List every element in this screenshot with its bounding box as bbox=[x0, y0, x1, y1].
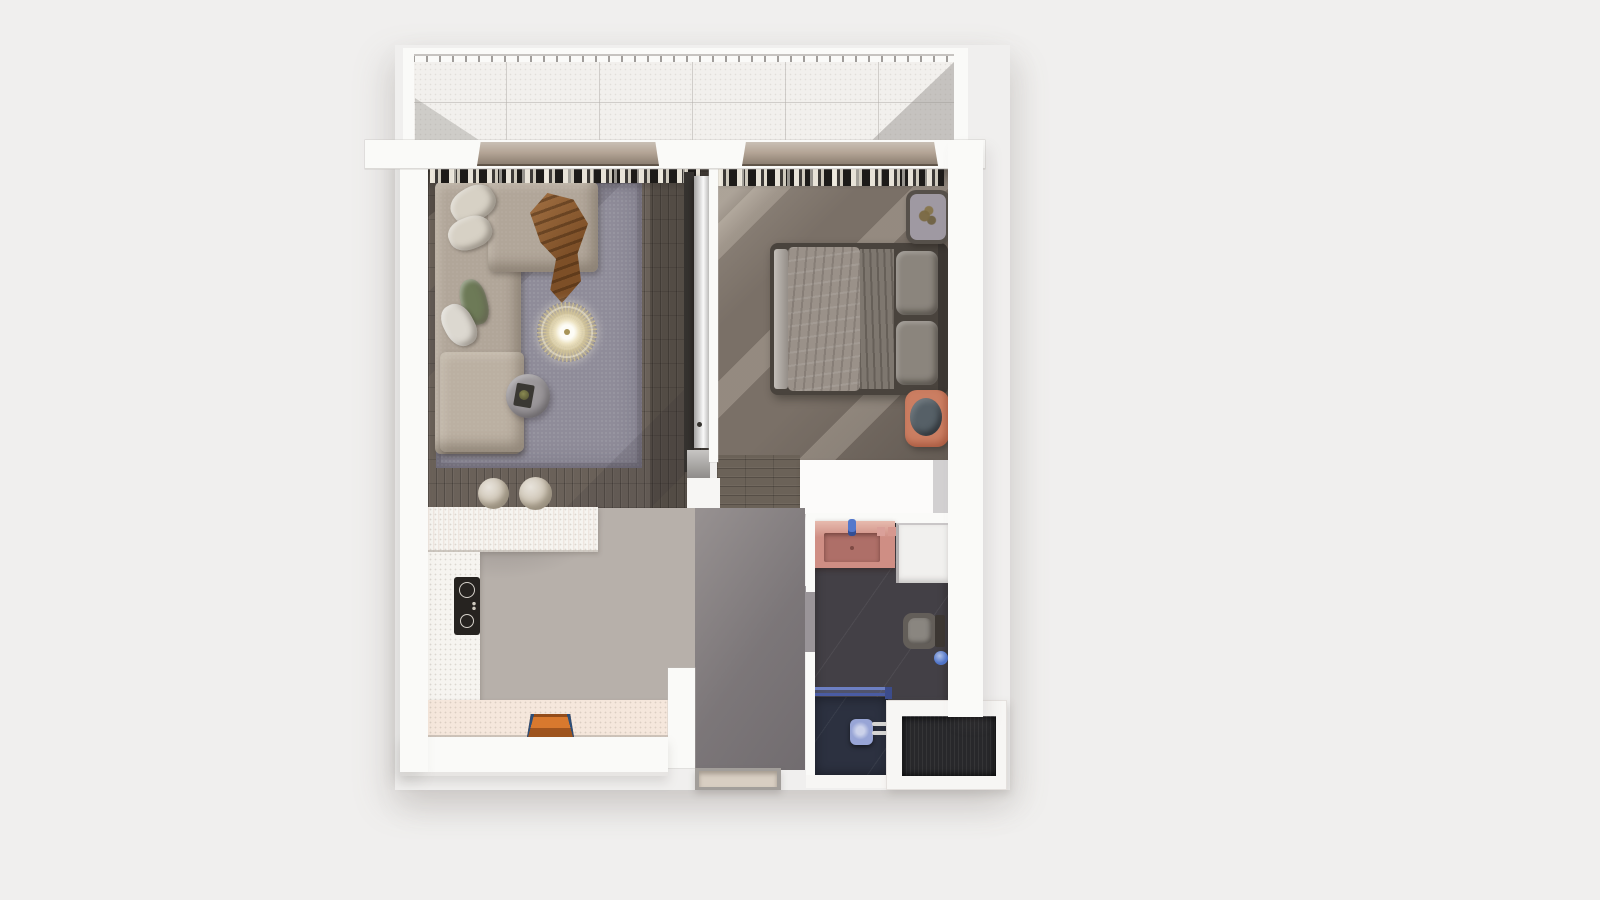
bed-headboard bbox=[938, 243, 948, 395]
cooktop bbox=[454, 577, 480, 635]
bar-stool-1 bbox=[478, 478, 509, 509]
coffee-table bbox=[506, 374, 550, 418]
bed-pillow-1 bbox=[896, 251, 938, 315]
bar-stool-2 bbox=[519, 477, 552, 510]
balcony bbox=[403, 48, 968, 144]
pendant-chandelier bbox=[537, 302, 597, 362]
hallway-floor bbox=[695, 508, 805, 770]
nightstand bbox=[906, 190, 950, 244]
soap-items bbox=[877, 527, 897, 536]
decor-tray bbox=[513, 383, 535, 409]
balcony-side-wall-right bbox=[954, 48, 968, 144]
threshold-step bbox=[699, 771, 777, 787]
bed-duvet bbox=[788, 247, 860, 391]
wall-bottom bbox=[400, 737, 668, 776]
chandelier-bulb bbox=[564, 329, 570, 335]
wall-divider bbox=[709, 142, 718, 462]
vanity-faucet bbox=[848, 519, 856, 536]
washing-machine bbox=[896, 523, 951, 583]
balcony-side-wall-left bbox=[403, 48, 414, 144]
bedroom bbox=[717, 168, 948, 460]
wardrobe bbox=[800, 460, 933, 515]
sliding-door-lintel-living bbox=[477, 142, 659, 166]
balcony-tiles bbox=[413, 62, 959, 144]
wall-left bbox=[400, 150, 428, 772]
cooktop-knobs bbox=[471, 602, 477, 610]
bed-sheet bbox=[860, 249, 894, 389]
entry-pillar-wall bbox=[668, 668, 695, 768]
glass-end-post bbox=[885, 687, 892, 699]
toilet-tank bbox=[935, 615, 945, 647]
entry-threshold bbox=[695, 768, 781, 790]
wardrobe-side-panel bbox=[933, 460, 949, 515]
door-recess bbox=[684, 172, 694, 472]
vanity-basin bbox=[824, 533, 880, 562]
curtain-bedroom bbox=[718, 168, 944, 186]
toilet bbox=[903, 613, 945, 649]
flush-button bbox=[934, 651, 948, 665]
living-room bbox=[428, 165, 709, 508]
toilet-lid bbox=[908, 618, 932, 644]
balcony-railing bbox=[413, 54, 961, 62]
double-bed bbox=[770, 243, 948, 395]
shower-head bbox=[850, 719, 873, 745]
bathroom-left-wall-upper bbox=[806, 515, 815, 592]
ottoman-pouf bbox=[905, 390, 949, 447]
floor-plan-render bbox=[0, 0, 1600, 900]
shower-glass bbox=[814, 687, 892, 699]
pouf-cushion bbox=[910, 398, 942, 436]
sliding-door-lintel-bedroom bbox=[742, 142, 938, 166]
burner-back bbox=[460, 614, 474, 628]
burner-front bbox=[459, 582, 475, 598]
basin-drain bbox=[850, 546, 854, 550]
bed-pillow-2 bbox=[896, 321, 938, 385]
bathroom-left-wall-lower bbox=[806, 652, 815, 788]
serving-tray bbox=[527, 714, 574, 737]
door-handle bbox=[697, 422, 702, 427]
entrance-doormat bbox=[902, 716, 996, 776]
tray-plant bbox=[518, 389, 530, 401]
kitchen-island bbox=[428, 507, 598, 552]
wall-right bbox=[948, 140, 983, 717]
hall-cabinet bbox=[687, 450, 710, 480]
bathroom-bottom-band bbox=[806, 775, 888, 788]
nightstand-plant bbox=[906, 190, 950, 244]
bed-footboard-bench bbox=[774, 249, 788, 389]
